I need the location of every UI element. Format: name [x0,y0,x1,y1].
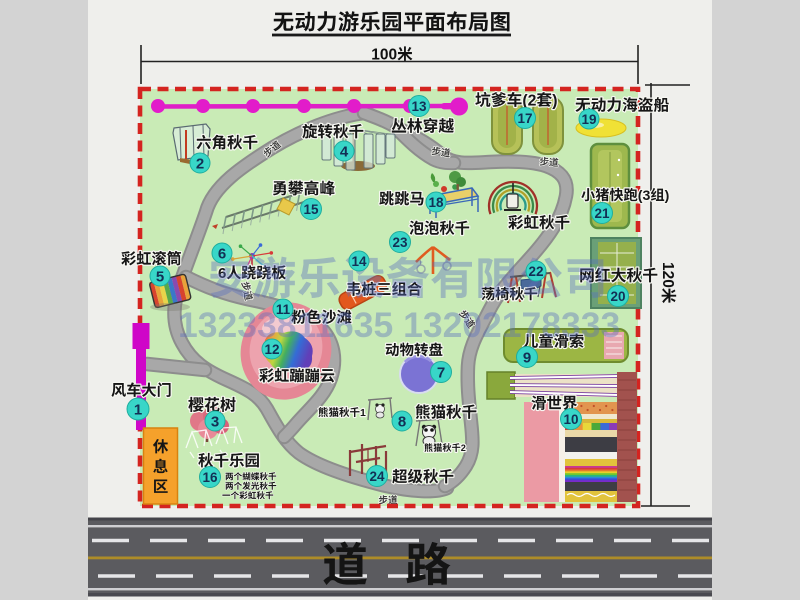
svg-text:12: 12 [264,342,279,357]
svg-text:6: 6 [218,245,226,262]
svg-text:24: 24 [369,469,385,484]
svg-text:(2: (2 [522,93,536,110]
svg-text:10: 10 [563,412,578,427]
svg-text:120: 120 [659,262,676,288]
svg-text:): ) [665,188,670,204]
svg-text:22: 22 [528,264,543,279]
svg-text:(3: (3 [638,188,651,204]
svg-text:2: 2 [461,443,466,453]
svg-text:13: 13 [411,99,427,114]
svg-text:16: 16 [202,470,218,485]
svg-text:14: 14 [351,254,367,269]
svg-text:4: 4 [340,143,349,160]
svg-text:1: 1 [134,401,142,418]
svg-text:20: 20 [610,289,625,304]
svg-text:7: 7 [437,364,445,381]
svg-text:3: 3 [211,413,219,430]
svg-text:5: 5 [156,268,164,285]
svg-text:17: 17 [517,111,532,126]
svg-text:21: 21 [594,206,610,221]
svg-text:2: 2 [196,155,204,172]
svg-text:11: 11 [276,302,291,317]
svg-text:9: 9 [523,349,531,366]
svg-text:23: 23 [392,235,408,250]
svg-text:19: 19 [581,112,596,127]
svg-text:8: 8 [398,413,406,430]
svg-text:1: 1 [360,407,366,419]
svg-text:15: 15 [303,202,319,217]
svg-text:): ) [552,93,557,110]
svg-text:13233811635 13202178333: 13233811635 13202178333 [178,305,620,345]
svg-text:18: 18 [428,195,444,210]
